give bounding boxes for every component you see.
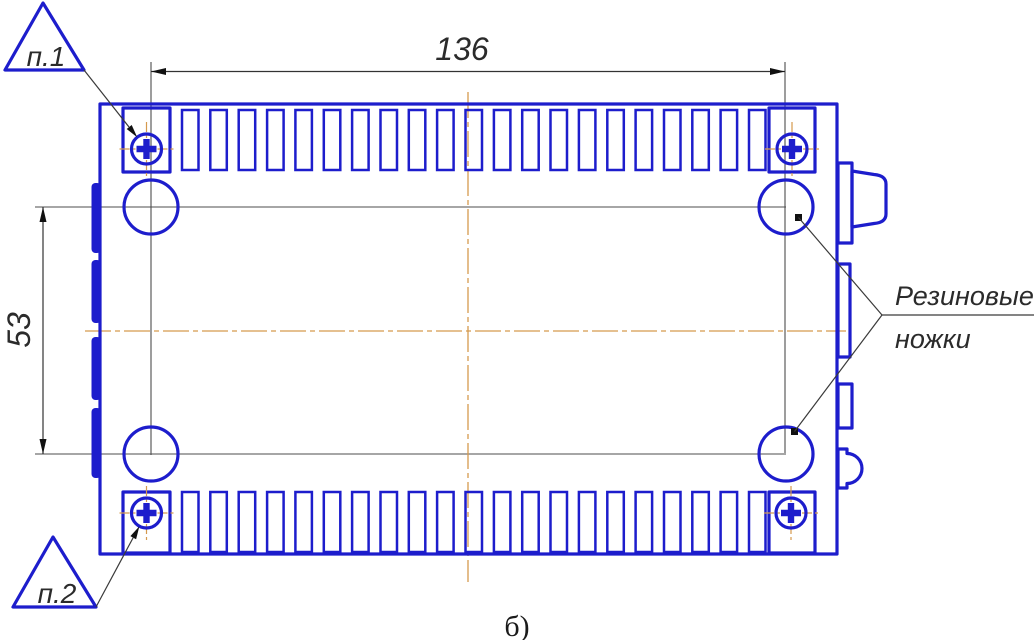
callout-p1: п.1: [5, 3, 137, 137]
vent-slot: [522, 110, 539, 170]
vent-slot: [551, 492, 568, 552]
connector-plug: [852, 171, 886, 227]
vent-slot: [295, 110, 312, 170]
dim-arrow-right: [770, 68, 785, 75]
vent-slot: [437, 492, 454, 552]
vent-slot: [692, 110, 709, 170]
vent-slot: [381, 492, 398, 552]
vent-slot: [210, 492, 227, 552]
dim-arrow-bottom: [40, 439, 47, 454]
enclosure-body: [92, 104, 887, 554]
vent-slot: [636, 492, 653, 552]
figure-caption: б): [504, 610, 529, 640]
vent-slot: [721, 110, 738, 170]
connector-base: [838, 163, 852, 243]
vent-slot: [522, 492, 539, 552]
screw-top-left: [120, 122, 174, 176]
vent-slot: [210, 110, 227, 170]
vent-slot: [295, 492, 312, 552]
vent-slot: [749, 110, 766, 170]
side-bar: [838, 264, 850, 357]
vent-slot: [381, 110, 398, 170]
right-side-profile: [838, 163, 886, 488]
callout-p2: п.2: [13, 526, 139, 609]
vent-slots-bottom: [182, 492, 766, 552]
rubber-feet-note: Резиновые ножки: [791, 214, 1034, 435]
vent-slot: [409, 492, 426, 552]
callout-p1-label: п.1: [27, 41, 66, 72]
vent-slot: [692, 492, 709, 552]
dimension-136-value: 136: [435, 31, 489, 67]
vent-slot: [239, 492, 256, 552]
screw-bottom-left: [120, 486, 174, 540]
vent-slot: [749, 492, 766, 552]
leader-arrowhead: [130, 526, 139, 539]
vent-slot: [182, 110, 199, 170]
vent-slot: [324, 492, 341, 552]
vent-slot: [721, 492, 738, 552]
vent-slot: [352, 110, 369, 170]
vent-slot: [607, 110, 624, 170]
dimension-53: 53: [1, 207, 47, 454]
vent-slot: [579, 110, 596, 170]
side-button: [838, 449, 862, 488]
vent-slot: [324, 110, 341, 170]
vent-slot: [352, 492, 369, 552]
screw-top-right: [765, 122, 819, 176]
vent-slot: [437, 110, 454, 170]
vent-slot: [664, 492, 681, 552]
vent-slot: [607, 492, 624, 552]
vent-slot: [182, 492, 199, 552]
drawing-sheet: 136 53 п.1 п.2 Резиновые ножки б): [0, 0, 1035, 640]
vent-slot: [494, 110, 511, 170]
vent-slot: [409, 110, 426, 170]
vent-slot: [494, 492, 511, 552]
vent-slot: [267, 492, 284, 552]
vent-slots-top: [182, 110, 766, 170]
vent-slot: [267, 110, 284, 170]
vent-slot: [239, 110, 256, 170]
dimension-136: 136: [151, 31, 785, 75]
note-line-2: ножки: [895, 324, 971, 354]
vent-slot: [551, 110, 568, 170]
vent-slot: [664, 110, 681, 170]
note-line-1: Резиновые: [895, 281, 1034, 311]
vent-slot: [636, 110, 653, 170]
dim-arrow-top: [40, 207, 47, 222]
callout-p2-label: п.2: [38, 578, 77, 609]
dim-arrow-left: [151, 68, 166, 75]
side-step: [838, 384, 852, 428]
screw-bottom-right: [764, 486, 818, 540]
vent-slot: [579, 492, 596, 552]
drawing-canvas: 136 53 п.1 п.2 Резиновые ножки б): [0, 0, 1035, 640]
construction-lines: [35, 62, 786, 455]
dimension-53-value: 53: [1, 312, 37, 348]
